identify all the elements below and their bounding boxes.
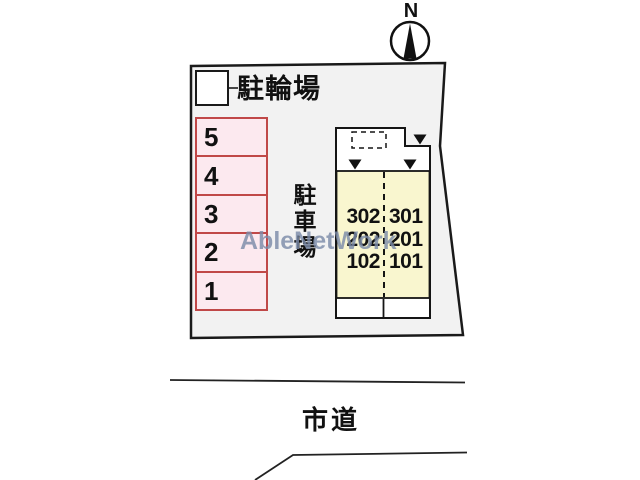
parking-space-number: 1	[197, 278, 218, 304]
parking-space-4: 4	[195, 155, 268, 195]
watermark: AbleNetWork	[240, 227, 415, 256]
road-edge-line	[170, 380, 465, 383]
road-label: 市道	[302, 400, 360, 437]
room-number: 302	[338, 206, 380, 229]
room-number: 301	[389, 206, 423, 229]
parking-space-1: 1	[195, 271, 268, 311]
bicycle-parking-area	[196, 71, 228, 105]
parking-space-number: 4	[197, 163, 218, 189]
site-plan-canvas: N 駐輪場 5 4 3 2 1 駐車場 302 301 202 201 102 …	[0, 0, 640, 480]
room-row: 302 301	[338, 206, 423, 229]
parking-spaces: 5 4 3 2 1	[195, 117, 268, 311]
parking-space-number: 3	[197, 201, 218, 227]
road-far-edge-line	[255, 453, 467, 480]
parking-space-number: 5	[197, 124, 218, 150]
north-label: N	[399, 0, 423, 22]
parking-space-number: 2	[197, 239, 218, 265]
parking-space-5: 5	[195, 117, 268, 157]
bicycle-parking-label: 駐輪場	[237, 74, 321, 104]
